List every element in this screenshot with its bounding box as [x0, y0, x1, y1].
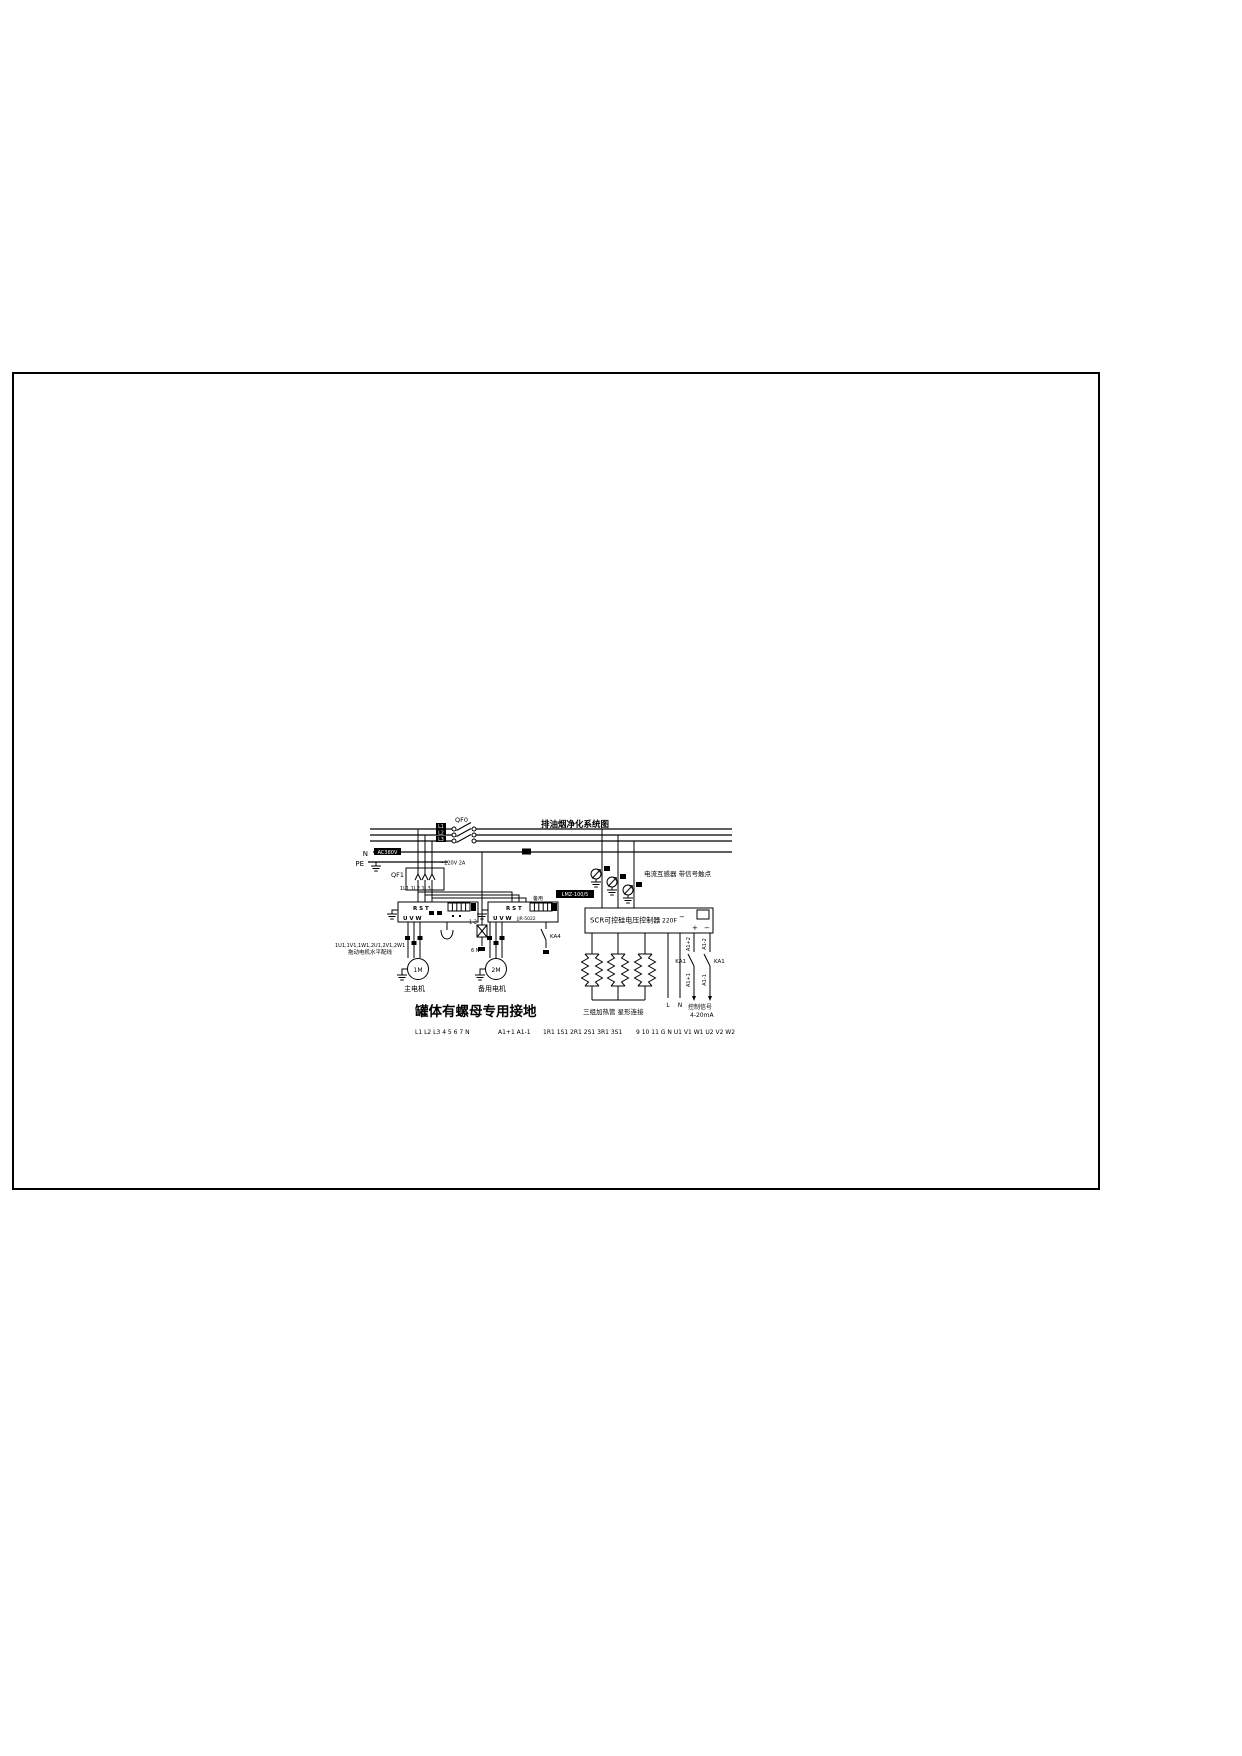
heater-3-icon [635, 952, 656, 1000]
starter2-feed-wires [418, 892, 526, 902]
wire-tag [494, 941, 499, 945]
motor-1: 1M 主电机 [397, 959, 429, 994]
arrow-down-icon [708, 996, 712, 1001]
wire-tag [412, 941, 417, 945]
terminal-row: L1 L2 L3 4 5 6 7 N A1+1 A1-1 1R1 1S1 2R1… [415, 1029, 735, 1036]
motor-note-2: 拖动电机水平配线 [348, 948, 393, 956]
motor-note-1: 1U1,1V1,1W1,2U1,2V1,2W1 [335, 943, 405, 949]
wire-tag [405, 936, 410, 940]
starter2-ground-wire [482, 910, 488, 914]
terminal-strip-icon [530, 903, 552, 911]
motor-1-tag: 1M [414, 967, 423, 974]
starter2-model: JJR-5022 [516, 916, 536, 922]
arrow-down-icon [692, 996, 696, 1001]
tap-label: ~220V 2A [440, 861, 466, 867]
voltage-tag-label: AC380V [378, 850, 398, 856]
scr-aux-box [697, 910, 709, 919]
motor-2-name: 备用电机 [478, 984, 506, 993]
wire-label-a1m1: A1-1 [702, 974, 708, 986]
pe-label: PE [355, 860, 364, 868]
phase-tag-l3: L3 [438, 837, 444, 843]
ground-icon [475, 975, 485, 980]
heater-feed-wires [592, 933, 645, 952]
terminal-group-2: A1+1 A1-1 [498, 1029, 531, 1036]
phase-marker-tags: L1 L2 L3 [436, 823, 446, 843]
ground-icon [397, 975, 407, 980]
starter1-ground-wire [392, 910, 398, 914]
banner-title: 排油烟净化系统图 [541, 819, 609, 830]
heater-caption: 三组加热管 星形连接 [583, 1007, 644, 1016]
grounding-title: 罐体有螺母专用接地 [414, 1003, 537, 1020]
qf0-isolator: QF0 [452, 816, 476, 843]
ground-icon [387, 914, 397, 919]
ct-loop-icon [441, 930, 453, 939]
signal-caption-1: 控制信号 [688, 1003, 712, 1011]
wire-tag [500, 936, 505, 940]
ka1-left-label: KA1 [675, 959, 686, 965]
scr-model: 220F [662, 918, 677, 925]
wire-label-a1m2: A1-2 [702, 938, 708, 950]
terminal-strip-icon [448, 903, 470, 911]
wire-tag [471, 903, 476, 911]
terminal-group-3: 1R1 1S1 2R1 2S1 3R1 3S1 [543, 1029, 622, 1036]
ct-3-icon [623, 882, 642, 903]
ka1-right-label: KA1 [714, 959, 725, 965]
neutral-label: N [363, 850, 368, 858]
scr-title: SCR可控硅电压控制器 [590, 916, 660, 925]
dot [452, 915, 454, 917]
motor-2: 2M 备用电机 [475, 959, 507, 994]
fuse-cross [477, 925, 487, 946]
wire-tag [429, 911, 434, 915]
heater-bank: 三组加热管 星形连接 [582, 933, 656, 1016]
phase-tag-l2: L2 [438, 830, 444, 836]
ka4-contact-icon [541, 922, 546, 948]
wire-tag [543, 950, 549, 954]
wire-tag [487, 936, 492, 940]
starter1-input-terminals: R S T [413, 906, 429, 912]
qf1-label: QF1 [391, 871, 404, 879]
power-bus: N PE AC380V L1 L2 L3 [355, 823, 732, 871]
wire-label-a1p1: A1+1 [686, 973, 692, 987]
aux-neutral-label: N [678, 1002, 683, 1009]
aux-power: L N [666, 933, 682, 1009]
motor-1-name: 主电机 [404, 984, 425, 993]
motor-2-ground-wire [480, 969, 486, 975]
scr-plus: + [692, 924, 698, 932]
scr-controller: SCR可控硅电压控制器 220F − + − [585, 908, 713, 933]
heater-1-icon [582, 952, 603, 1000]
phase-tag-l1: L1 [438, 824, 444, 830]
heater-2-icon [608, 952, 629, 1000]
motor-2-tag: 2M [492, 967, 501, 974]
signal-caption-2: 4-20mA [690, 1012, 714, 1019]
ground-icon [371, 866, 381, 871]
wire-label-a1p2: A1+2 [686, 937, 692, 951]
wire-tag [418, 936, 423, 940]
starter2-output-terminals: U V W [493, 916, 512, 922]
schematic-canvas: N PE AC380V L1 L2 L3 QF0 排油烟净化系统图 [0, 0, 1242, 1756]
control-signal: A1+2 A1+1 A1-2 A1-1 KA1 KA1 控制信号 4-20mA [675, 933, 725, 1019]
starter1-output-terminals: U V W [403, 916, 422, 922]
signal-leads [694, 988, 710, 996]
scr-minus: − [704, 924, 710, 932]
live-label: L [666, 1002, 670, 1009]
wire-tag [551, 903, 557, 911]
dot [459, 915, 461, 917]
scr-minus-top: − [679, 913, 685, 921]
ct-note: 电流互感器 带信号触点 [644, 869, 712, 878]
wire-tag [478, 947, 485, 951]
wire-tag [437, 911, 442, 915]
starter2-spare-label: 备用 [533, 895, 543, 902]
motor-1-ground-wire [402, 969, 408, 975]
wire-tag [522, 849, 531, 855]
drawing-sheet: N PE AC380V L1 L2 L3 QF0 排油烟净化系统图 [0, 0, 1242, 1756]
starter1-feed-label: 1L1 1L2 1L3 [400, 886, 431, 892]
qf0-label: QF0 [455, 816, 468, 824]
qf0-switch-icon [452, 823, 476, 844]
drawing-frame [13, 373, 1099, 1189]
ct-ratio-label: LMZ-100/5 [562, 892, 589, 898]
ka4-label: KA4 [550, 934, 561, 940]
starter2-input-terminals: R S T [506, 906, 522, 912]
terminal-group-1: L1 L2 L3 4 5 6 7 N [415, 1029, 470, 1036]
terminal-group-4: 9 10 11 G N U1 V1 W1 U2 V2 W2 [636, 1029, 735, 1036]
aux-power-wires [668, 933, 680, 998]
